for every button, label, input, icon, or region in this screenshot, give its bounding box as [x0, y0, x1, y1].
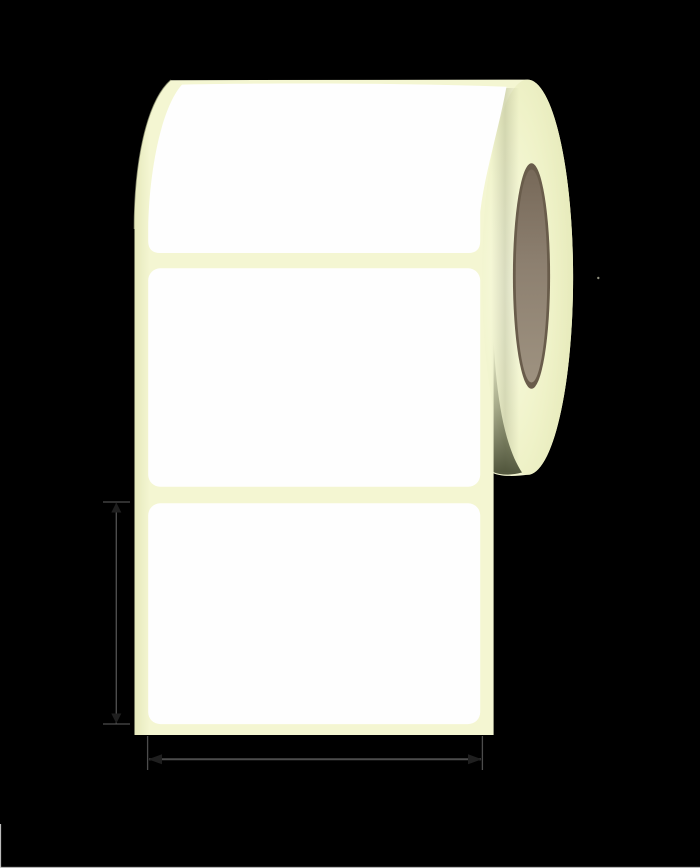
core-hole [516, 170, 548, 383]
label-middle [148, 268, 480, 487]
label-roll-illustration [0, 0, 700, 868]
label-bottom [148, 503, 480, 724]
product-image-canvas [0, 0, 700, 868]
stray-dot [597, 277, 599, 279]
label-top [148, 83, 506, 253]
